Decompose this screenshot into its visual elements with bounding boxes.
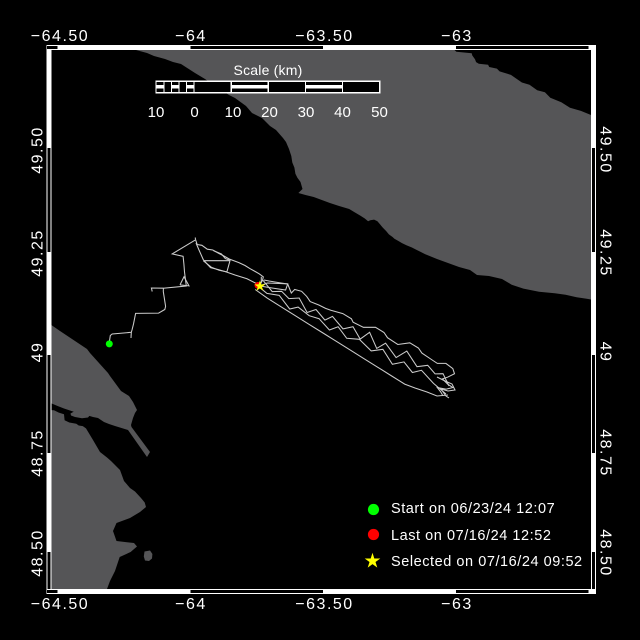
svg-text:48.75: 48.75 <box>30 429 47 477</box>
svg-text:40: 40 <box>334 104 351 121</box>
svg-text:−64: −64 <box>175 596 207 613</box>
svg-text:49.50: 49.50 <box>597 126 614 174</box>
svg-text:−63.50: −63.50 <box>295 596 353 613</box>
svg-text:0: 0 <box>190 104 198 121</box>
svg-text:−63: −63 <box>441 596 473 613</box>
svg-text:48.50: 48.50 <box>30 529 47 577</box>
svg-text:49: 49 <box>597 342 614 363</box>
svg-text:Last on 07/16/24 12:52: Last on 07/16/24 12:52 <box>391 528 551 544</box>
svg-text:−64: −64 <box>175 28 207 45</box>
svg-text:48.75: 48.75 <box>597 429 614 477</box>
svg-text:20: 20 <box>261 104 278 121</box>
svg-text:−64.50: −64.50 <box>31 596 89 613</box>
svg-text:49.25: 49.25 <box>597 229 614 277</box>
svg-text:30: 30 <box>298 104 315 121</box>
svg-text:10: 10 <box>225 104 242 121</box>
svg-text:Scale (km): Scale (km) <box>234 62 303 78</box>
svg-text:Selected on 07/16/24 09:52: Selected on 07/16/24 09:52 <box>391 554 583 570</box>
svg-text:48.50: 48.50 <box>597 529 614 577</box>
svg-text:49.25: 49.25 <box>30 229 47 277</box>
svg-text:49: 49 <box>30 342 47 363</box>
svg-text:−63: −63 <box>441 28 473 45</box>
svg-text:−64.50: −64.50 <box>31 28 89 45</box>
svg-text:50: 50 <box>371 104 388 121</box>
svg-text:49.50: 49.50 <box>30 126 47 174</box>
svg-text:−63.50: −63.50 <box>295 28 353 45</box>
svg-text:Start on 06/23/24 12:07: Start on 06/23/24 12:07 <box>391 501 555 517</box>
svg-text:10: 10 <box>148 104 165 121</box>
